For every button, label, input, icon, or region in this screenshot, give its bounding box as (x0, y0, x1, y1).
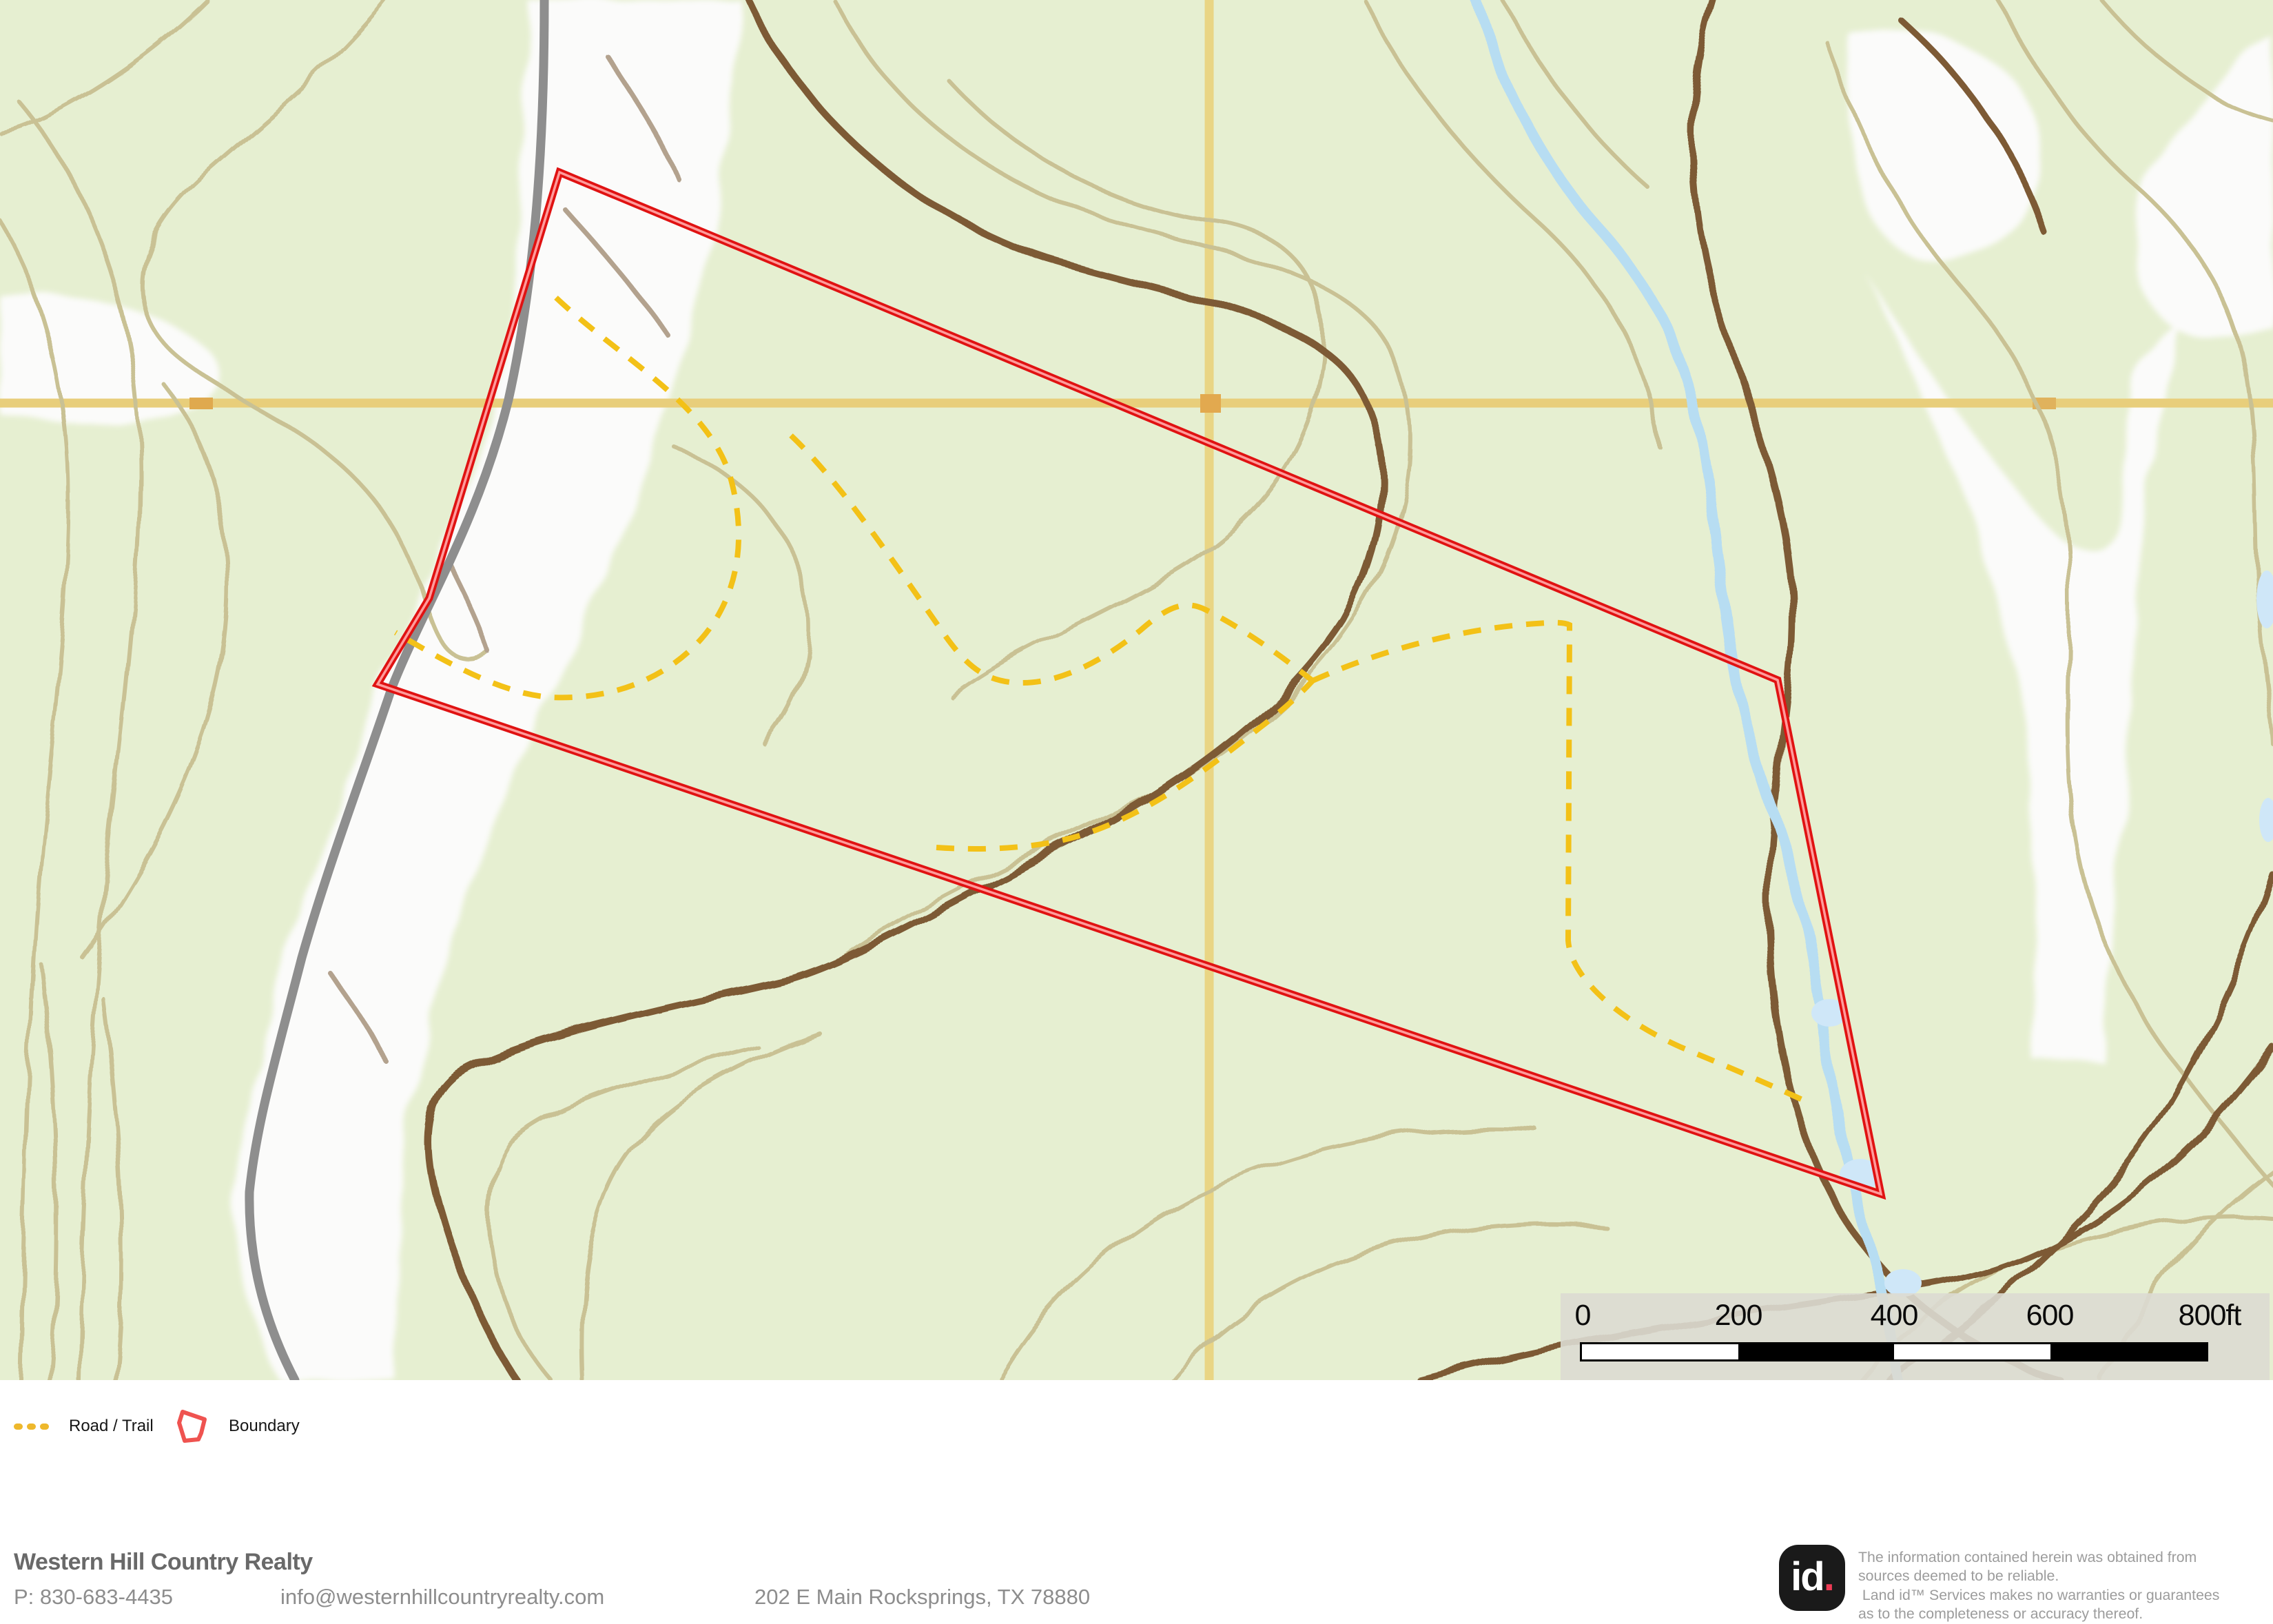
map-scale-bar: 0 200 400 600 800ft (1561, 1293, 2270, 1380)
land-id-logo: id. (1779, 1545, 1845, 1611)
disclaimer-line: Land id™ Services makes no warranties or… (1858, 1586, 2273, 1605)
scale-label: 600 (2026, 1299, 2074, 1333)
topo-map-svg (0, 0, 2273, 1380)
scale-label: 800ft (2179, 1299, 2241, 1333)
scale-label: 200 (1715, 1299, 1762, 1333)
disclaimer-line: as to the completeness or accuracy there… (1858, 1605, 2273, 1623)
scale-bar-segments (1580, 1342, 2208, 1361)
email-address[interactable]: info@westernhillcountryrealty.com (280, 1585, 604, 1610)
polygon-outline-icon (174, 1407, 209, 1446)
legend-item-boundary: Boundary (174, 1404, 300, 1448)
logo-text: id (1791, 1554, 1824, 1599)
land-id-map-export: { "map": { "legend": { "items": [ {"labe… (0, 0, 2273, 1622)
company-name: Western Hill Country Realty (14, 1549, 313, 1576)
phone-number: P: 830-683-4435 (14, 1585, 173, 1610)
legend-label: Boundary (229, 1417, 300, 1436)
scale-label: 400 (1871, 1299, 1918, 1333)
dashed-line-icon (14, 1421, 50, 1431)
disclaimer-text: The information contained herein was obt… (1858, 1548, 2273, 1624)
disclaimer-line: sources deemed to be reliable. (1858, 1567, 2273, 1585)
topo-map-canvas[interactable]: 0 200 400 600 800ft (0, 0, 2273, 1380)
scale-label: 0 (1575, 1299, 1591, 1333)
legend-item-road-trail: Road / Trail (14, 1404, 154, 1448)
logo-dot: . (1824, 1554, 1833, 1599)
legend-label: Road / Trail (69, 1417, 154, 1436)
disclaimer-line: The information contained herein was obt… (1858, 1548, 2273, 1567)
map-legend: Road / Trail Boundary (0, 1404, 620, 1448)
contact-row: P: 830-683-4435 info@westernhillcountryr… (0, 1585, 1447, 1615)
street-address: 202 E Main Rocksprings, TX 78880 (754, 1585, 1090, 1610)
